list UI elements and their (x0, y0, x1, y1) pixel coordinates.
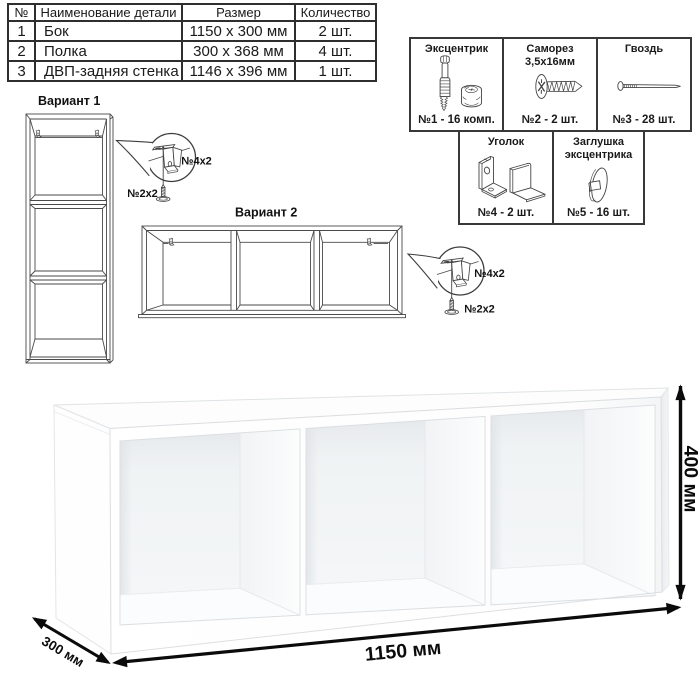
svg-text:№2х2: №2х2 (127, 188, 158, 200)
svg-text:Вариант 1: Вариант 1 (38, 94, 100, 108)
svg-text:№4х2: №4х2 (181, 155, 212, 167)
svg-text:400 мм: 400 мм (680, 446, 700, 513)
svg-text:Вариант 2: Вариант 2 (235, 206, 297, 220)
svg-text:№2х2: №2х2 (464, 303, 495, 315)
svg-text:300 мм: 300 мм (39, 633, 86, 669)
svg-text:№4х2: №4х2 (474, 268, 505, 280)
svg-text:1150 мм: 1150 мм (364, 637, 442, 666)
